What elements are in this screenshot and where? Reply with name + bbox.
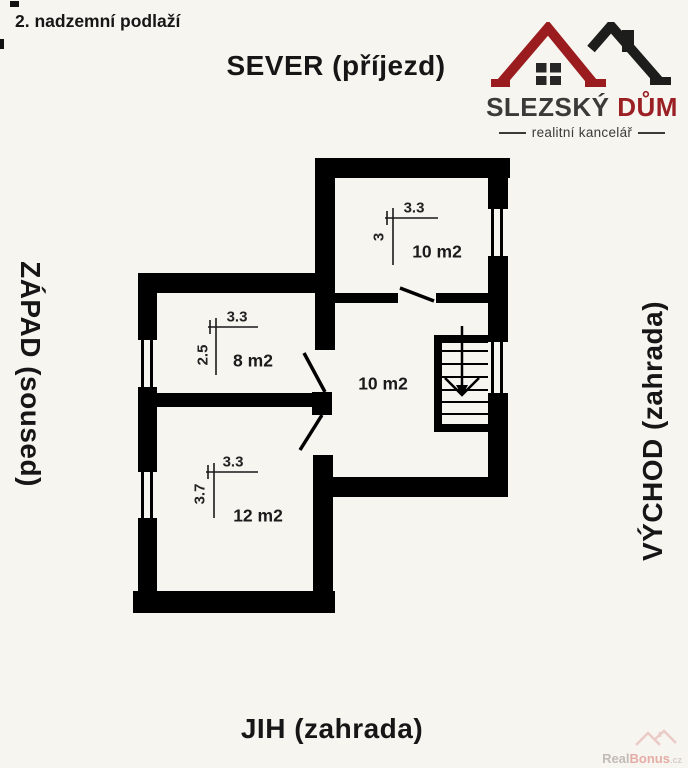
- wall-west-upper: [138, 273, 157, 340]
- wall-north-top: [315, 158, 510, 178]
- window-east-1b: [500, 209, 503, 256]
- wall-room-divider: [140, 393, 313, 407]
- window-west-2b: [150, 472, 153, 518]
- wall-north-left: [315, 158, 335, 350]
- dim-height-room-12: 3.7: [192, 484, 209, 505]
- window-west-1b: [150, 340, 153, 387]
- area-label-room-12: 12 m2: [233, 506, 283, 527]
- wall-west-wing-top: [138, 273, 335, 293]
- dim-height-room-8: 2.5: [195, 345, 212, 366]
- watermark-text: RealBonus.cz: [586, 752, 682, 765]
- wall-east-upper: [488, 158, 508, 209]
- wall-hall-divider-right: [436, 293, 488, 303]
- window-east-2: [491, 342, 494, 393]
- wall-hall-south: [316, 477, 508, 497]
- window-east-1: [491, 209, 494, 256]
- watermark-roof-icon: [622, 729, 682, 747]
- window-east-2b: [500, 342, 503, 393]
- wall-south: [133, 591, 335, 613]
- watermark-part3: .cz: [670, 755, 682, 765]
- watermark: RealBonus.cz: [586, 729, 682, 765]
- floorplan-page: 2. nadzemní podlaží SEVER (příjezd) ZÁPA…: [0, 0, 688, 768]
- window-west-1: [141, 340, 144, 387]
- area-label-hall: 10 m2: [358, 374, 408, 395]
- door-room-8: [304, 353, 325, 392]
- door-room-12: [300, 415, 322, 450]
- window-west-2: [141, 472, 144, 518]
- wall-middle-block: [312, 392, 332, 415]
- area-label-room-north: 10 m2: [412, 242, 462, 263]
- dim-width-room-12: 3.3: [223, 454, 244, 471]
- area-label-room-8: 8 m2: [233, 351, 273, 372]
- door-north-room: [400, 288, 434, 301]
- watermark-part1: Real: [602, 751, 629, 766]
- dim-width-room-8: 3.3: [227, 309, 248, 326]
- dim-height-room-north: 3: [371, 233, 388, 241]
- staircase: [434, 326, 488, 432]
- wall-hall-divider-left: [335, 293, 398, 303]
- wall-east-mid: [488, 256, 508, 342]
- watermark-part2: Bonus: [630, 751, 670, 766]
- floorplan-drawing: [0, 0, 688, 768]
- dim-width-room-north: 3.3: [404, 200, 425, 217]
